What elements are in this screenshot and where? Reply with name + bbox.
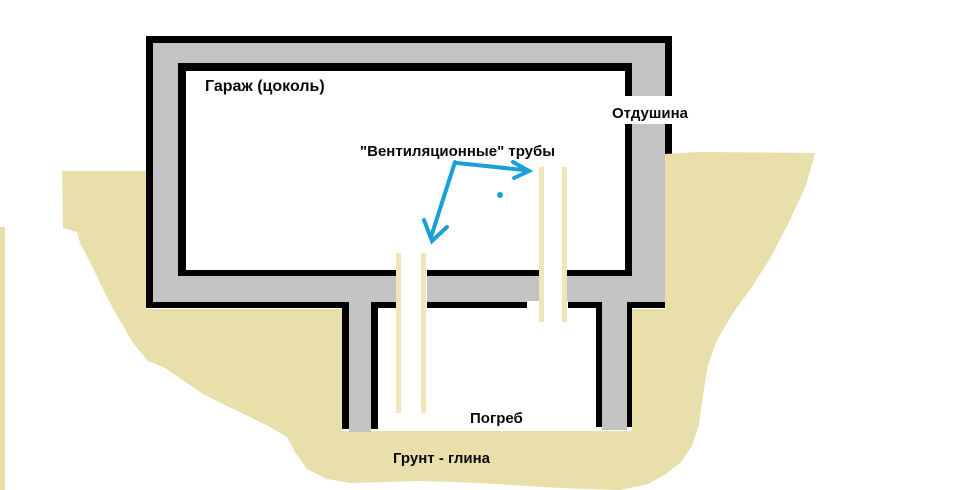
cellar-left-wall-outer-border (342, 302, 349, 429)
soil-left-edge-strip (0, 227, 5, 490)
cellar-left-wall-fill (349, 276, 371, 432)
cellar-right-wall-inner-border (596, 302, 602, 427)
cellar-label: Погреб (470, 410, 523, 427)
right-pipe-wall-b (562, 167, 567, 322)
left-pipe-wall-a (396, 253, 401, 413)
soil-label: Грунт - глина (393, 450, 491, 467)
cellar-right-wall-outer-border (627, 302, 632, 427)
cellar-left-wall-inner-border (371, 302, 378, 429)
garage-interior (186, 71, 625, 270)
right-pipe-wall-a (539, 167, 544, 322)
garage-cellar-diagram: Гараж (цоколь) Отдушина "Вентиляционные"… (0, 0, 959, 490)
pipes-label: "Вентиляционные" трубы (360, 143, 555, 160)
diagram-canvas: Гараж (цоколь) Отдушина "Вентиляционные"… (0, 0, 959, 490)
garage-structure (146, 36, 672, 308)
stray-paint-dot (497, 192, 503, 198)
floor-gap-right-pipe-extension (527, 301, 568, 309)
cellar-right-wall-fill (602, 276, 627, 430)
left-pipe-wall-b (421, 253, 426, 413)
garage-label: Гараж (цоколь) (205, 78, 325, 95)
vent-label: Отдушина (612, 105, 689, 122)
